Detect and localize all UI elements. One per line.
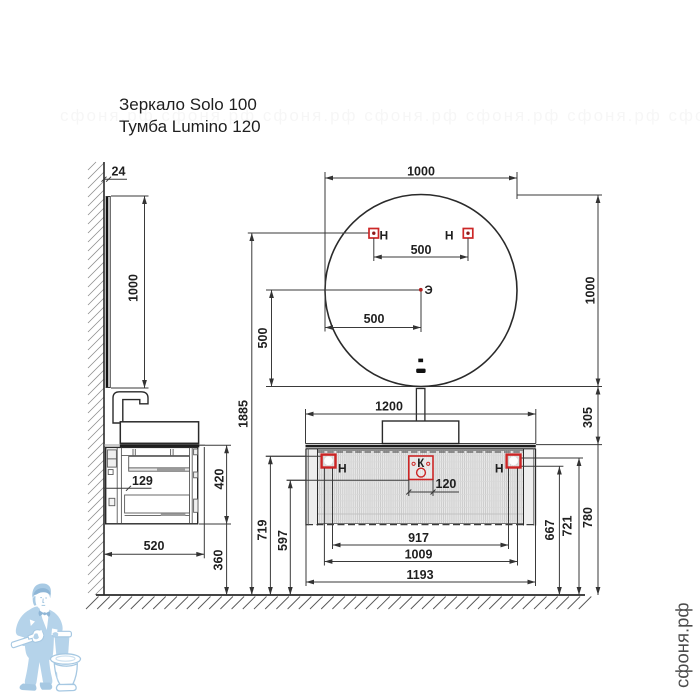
svg-text:1000: 1000: [584, 277, 598, 305]
svg-text:520: 520: [144, 539, 165, 553]
svg-text:780: 780: [581, 507, 595, 528]
svg-text:1885: 1885: [237, 400, 251, 428]
svg-text:305: 305: [581, 407, 595, 428]
svg-text:721: 721: [561, 516, 575, 537]
svg-text:667: 667: [543, 520, 557, 541]
svg-text:500: 500: [411, 243, 432, 257]
svg-text:420: 420: [213, 469, 227, 490]
svg-text:сфоня.рф сфоня.рф сфоня.рф: сфоня.рф сфоня.рф сфоня.рф сфоня.рф сфон…: [60, 106, 700, 125]
svg-text:917: 917: [408, 531, 429, 545]
svg-text:129: 129: [132, 474, 153, 488]
svg-text:500: 500: [256, 328, 270, 349]
svg-text:Н: Н: [338, 462, 347, 476]
svg-text:500: 500: [364, 312, 385, 326]
svg-text:1000: 1000: [407, 165, 435, 179]
svg-text:1193: 1193: [406, 568, 433, 582]
svg-text:120: 120: [436, 477, 457, 491]
svg-text:Н: Н: [495, 462, 504, 476]
svg-text:24: 24: [112, 165, 126, 179]
svg-text:Н: Н: [445, 229, 454, 243]
svg-text:сфоня.рф: сфоня.рф: [672, 602, 693, 688]
svg-text:1000: 1000: [127, 274, 141, 302]
svg-text:360: 360: [212, 550, 226, 571]
svg-text:597: 597: [276, 530, 290, 551]
svg-text:Э: Э: [425, 285, 433, 297]
svg-text:1009: 1009: [405, 548, 433, 562]
svg-text:Н: Н: [380, 229, 389, 243]
svg-text:719: 719: [256, 520, 270, 541]
svg-text:1200: 1200: [375, 400, 403, 414]
